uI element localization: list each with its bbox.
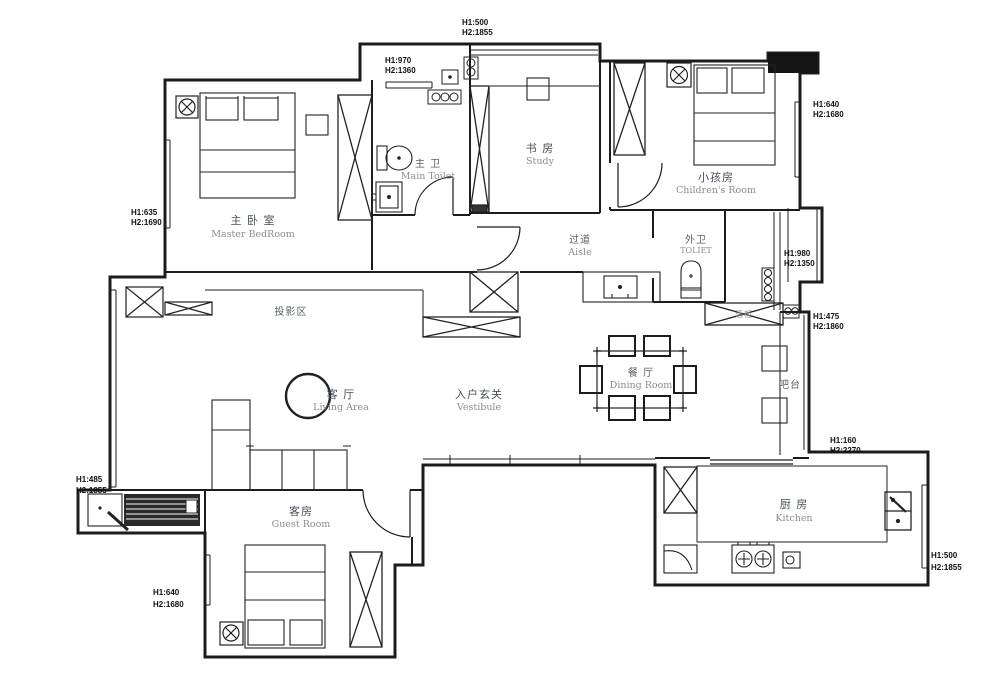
children-nightstand [667,63,691,87]
label-master-bedroom-zh: 主 卧 室 [231,213,276,227]
room-labels: 主 卧 室 Master BedRoom 主 卫 Main Toilet 书 房… [211,142,812,530]
label-living-area-zh: 客 厅 [327,387,356,401]
label-wine-cabinet: 酒柜 [735,309,753,319]
dim-guest-west-h2: H2:1680 [153,600,184,609]
dim-master-west-h1: H1:635 [131,208,158,217]
dim-children-east-h1: H1:640 [813,100,840,109]
label-dining-room-zh: 餐 厅 [628,366,654,379]
label-guest-room-en: Guest Room [272,519,331,530]
guest-nightstand [220,622,243,645]
label-projection-area: 投影区 [275,305,308,318]
dim-kitchen-east-h1: H1:500 [931,551,958,560]
dim-toilet-window-h2: H2:1360 [385,66,416,75]
label-kitchen-en: Kitchen [775,513,812,524]
master-bench [306,115,328,135]
plumbing-circles [762,268,774,301]
dim-kitchen-east-h2: H2:1855 [931,563,962,572]
main-toilet-door [415,177,453,215]
label-vestibule-en: Vestibule [456,402,502,413]
fridge [664,467,697,513]
kitchen-drain [783,552,800,568]
dim-bar-east-h2: H2:1860 [813,322,844,331]
dim-toilet-window-h1: H1:970 [385,56,412,65]
label-main-toilet-en: Main Toilet [401,171,456,182]
label-vestibule-zh: 入户玄关 [455,387,503,401]
label-guest-room-zh: 客房 [289,504,313,518]
stove [732,542,774,573]
label-main-toilet-zh: 主 卫 [415,158,441,170]
children-bed [694,65,775,165]
study-desk [490,78,599,100]
main-toilet-wc [377,146,412,170]
label-kitchen-zh: 厨 房 [780,498,809,511]
aisle-washbasin [583,272,660,302]
bay-cabinets [126,287,212,317]
master-nightstand [176,96,198,118]
children-room-door [618,163,662,207]
master-bed [200,93,295,198]
children-wardrobe [614,63,645,155]
dim-kitchen-north-h2: H2:2270 [830,446,861,455]
guest-bed [245,545,325,648]
dim-kitchen-north-h1: H1:160 [830,436,857,445]
floor-plan-drawing: 主 卧 室 Master BedRoom 主 卫 Main Toilet 书 房… [0,0,981,673]
master-wardrobe [338,95,372,220]
entry-door [477,227,520,270]
label-aisle-zh: 过道 [569,233,591,246]
outer-toilet-wc [681,261,701,298]
label-aisle-en: Aisle [567,247,592,258]
interior-walls [110,44,809,565]
study-wardrobe [470,86,489,212]
dim-master-west-h2: H2:1690 [131,218,162,227]
floor-plan: 主 卧 室 Master BedRoom 主 卫 Main Toilet 书 房… [0,0,981,673]
dim-living-west-h2: H2:1855 [76,486,107,495]
label-dining-room-en: Dining Room [610,380,673,391]
kitchen-sink [885,492,911,530]
shoe-cabinet [423,317,520,337]
guest-wardrobe [350,552,382,647]
label-master-bedroom-en: Master BedRoom [211,229,295,240]
label-children-room-en: Children's Room [676,185,756,196]
label-outer-toilet-zh: 外卫 [685,234,707,246]
label-living-area-en: Living Area [313,402,369,413]
piano [88,494,200,530]
guest-room-door [363,490,410,537]
kitchen-corner-unit [664,545,697,573]
dim-bay-east-h1: H1:980 [784,249,811,258]
dim-living-west-h1: H1:485 [76,475,103,484]
label-bar-counter: 吧台 [779,378,801,391]
projection-line [205,290,423,317]
label-children-room-zh: 小孩房 [698,171,734,184]
dimension-labels: H1:500 H2:1855 H1:970 H2:1360 H1:635 H2:… [76,18,962,609]
sofa [212,400,351,490]
dim-guest-west-h1: H1:640 [153,588,180,597]
dim-top-study-h1: H1:500 [462,18,489,27]
dim-bay-east-h2: H2:1350 [784,259,815,268]
label-study-zh: 书 房 [526,142,555,155]
main-toilet-sink [372,182,402,212]
dim-top-study-h2: H2:1855 [462,28,493,37]
kitchen-sliding-door [710,460,793,464]
label-study-en: Study [526,156,555,167]
dim-bar-east-h1: H1:475 [813,312,840,321]
entry-cabinet [470,272,518,312]
doors [363,163,793,537]
dim-children-east-h2: H2:1680 [813,110,844,119]
label-outer-toilet-en: TOLIET [680,246,712,255]
